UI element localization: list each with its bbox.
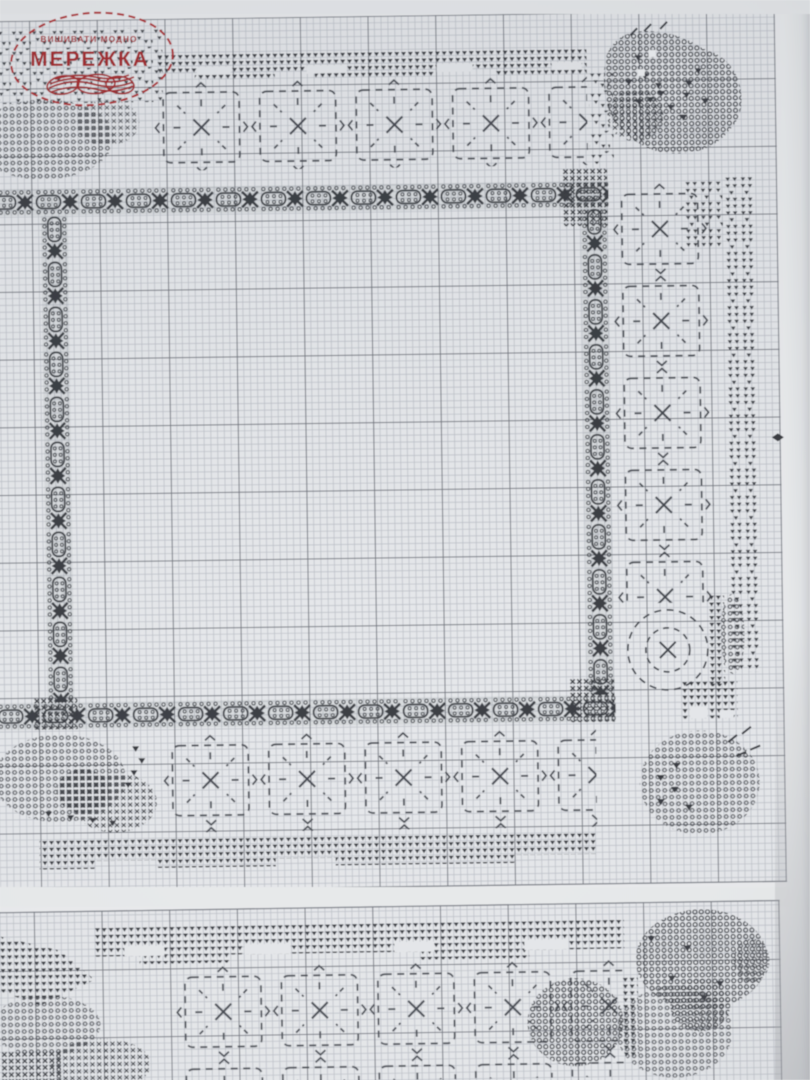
- svg-text:ВИШИВАТИ МОДНО: ВИШИВАТИ МОДНО: [40, 34, 137, 44]
- svg-text:МЕРЕЖКА: МЕРЕЖКА: [30, 48, 149, 71]
